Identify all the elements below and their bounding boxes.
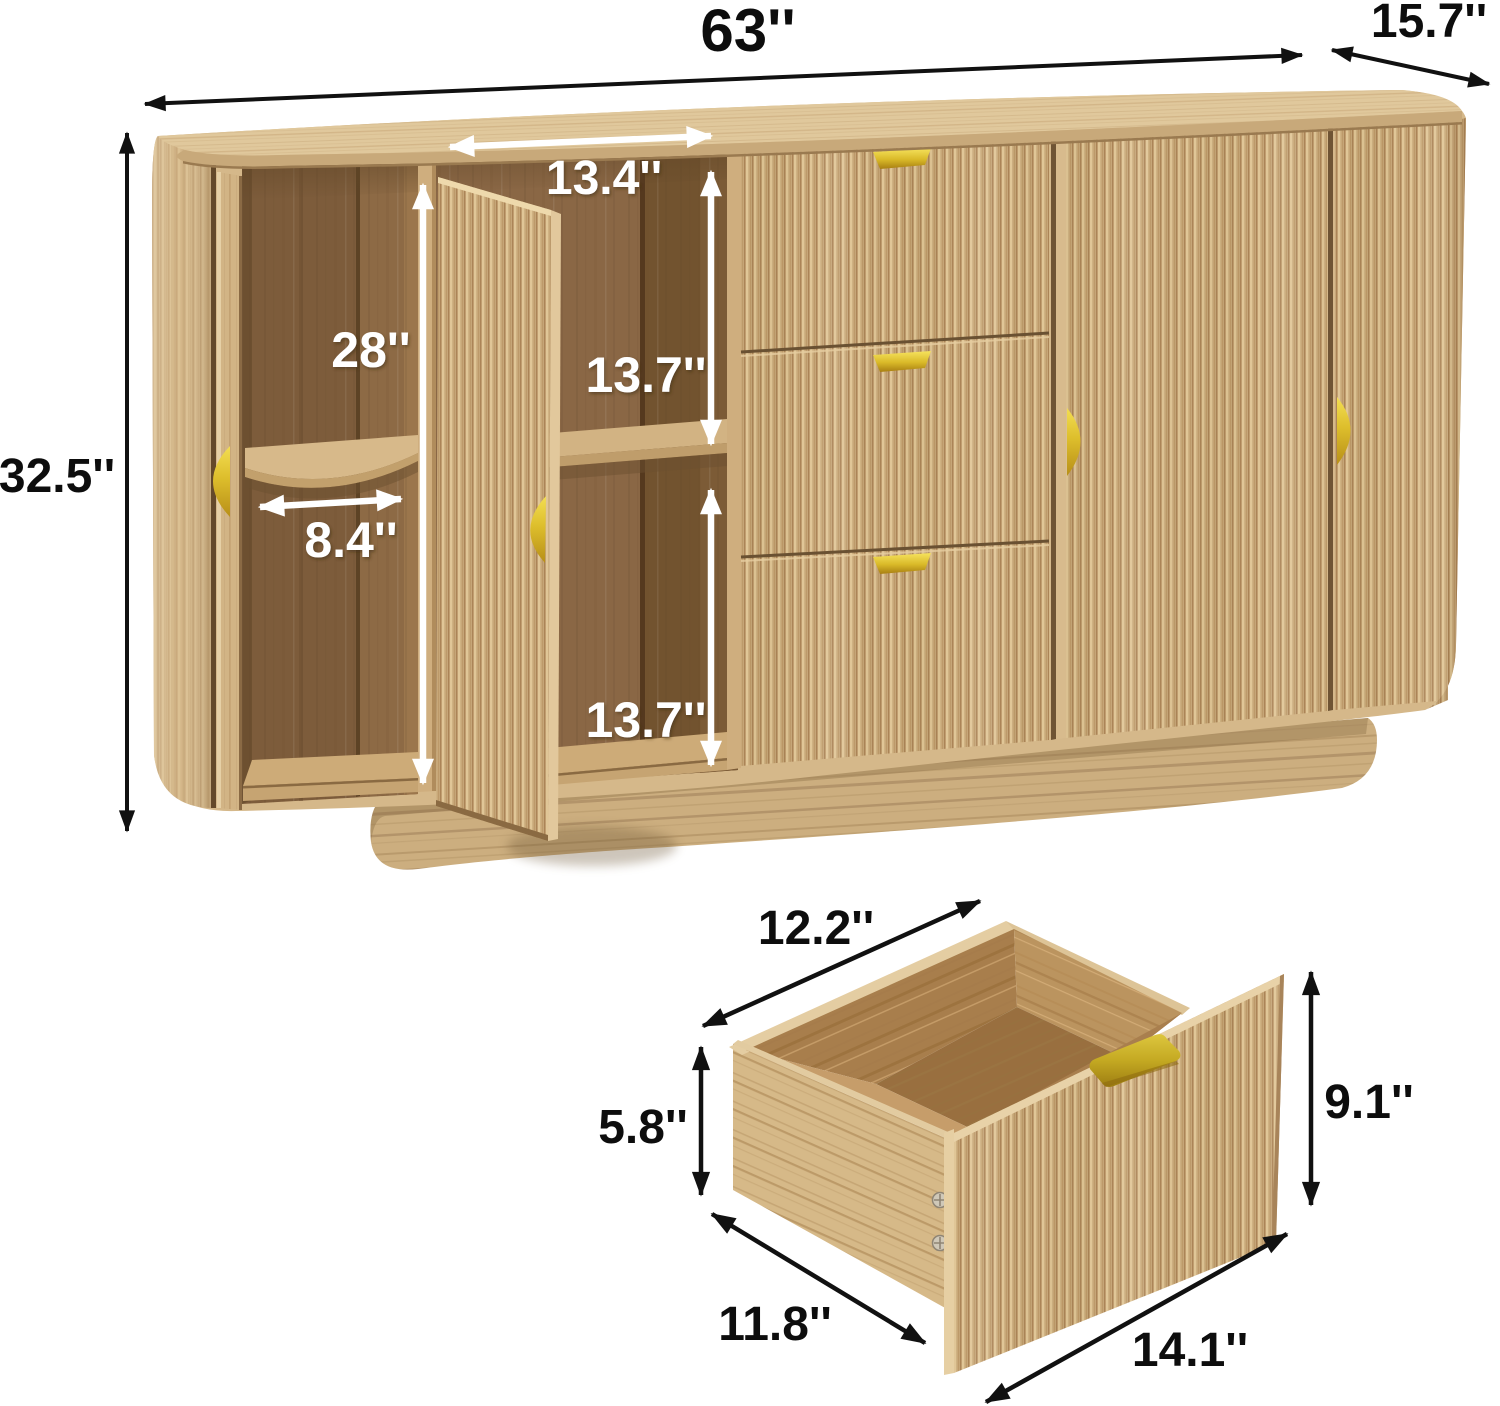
svg-text:8.4'': 8.4'': [304, 512, 397, 568]
svg-text:13.7'': 13.7'': [585, 692, 706, 748]
svg-text:14.1'': 14.1'': [1132, 1324, 1248, 1377]
svg-text:28'': 28'': [331, 322, 410, 378]
svg-text:32.5'': 32.5'': [0, 450, 115, 503]
svg-text:13.7'': 13.7'': [585, 347, 706, 403]
svg-text:13.4'': 13.4'': [546, 152, 662, 205]
svg-text:63'': 63'': [700, 0, 795, 64]
svg-text:9.1'': 9.1'': [1324, 1076, 1414, 1129]
svg-text:12.2'': 12.2'': [758, 902, 874, 955]
svg-text:11.8'': 11.8'': [718, 1298, 832, 1351]
svg-text:15.7'': 15.7'': [1371, 0, 1487, 48]
svg-text:5.8'': 5.8'': [598, 1101, 688, 1154]
